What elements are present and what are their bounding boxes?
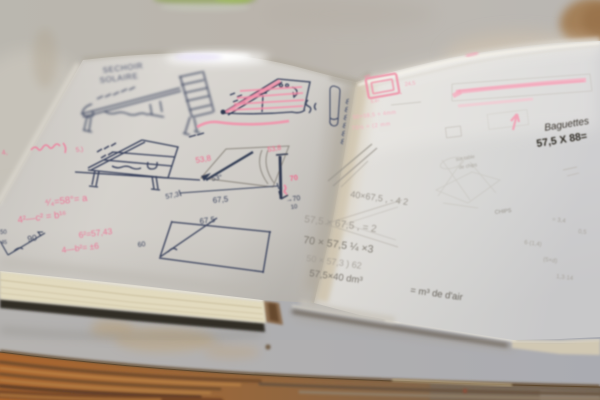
svg-text:50: 50 bbox=[0, 230, 7, 236]
svg-text:90: 90 bbox=[27, 232, 38, 244]
svg-text:45: 45 bbox=[1, 240, 7, 246]
svg-text:60: 60 bbox=[137, 241, 146, 249]
svg-text:0,5: 0,5 bbox=[578, 229, 588, 236]
svg-text:5,): 5,) bbox=[75, 146, 83, 154]
svg-text:67,5: 67,5 bbox=[212, 194, 229, 205]
svg-text:70: 70 bbox=[289, 173, 299, 183]
svg-text:4,: 4, bbox=[1, 149, 8, 157]
